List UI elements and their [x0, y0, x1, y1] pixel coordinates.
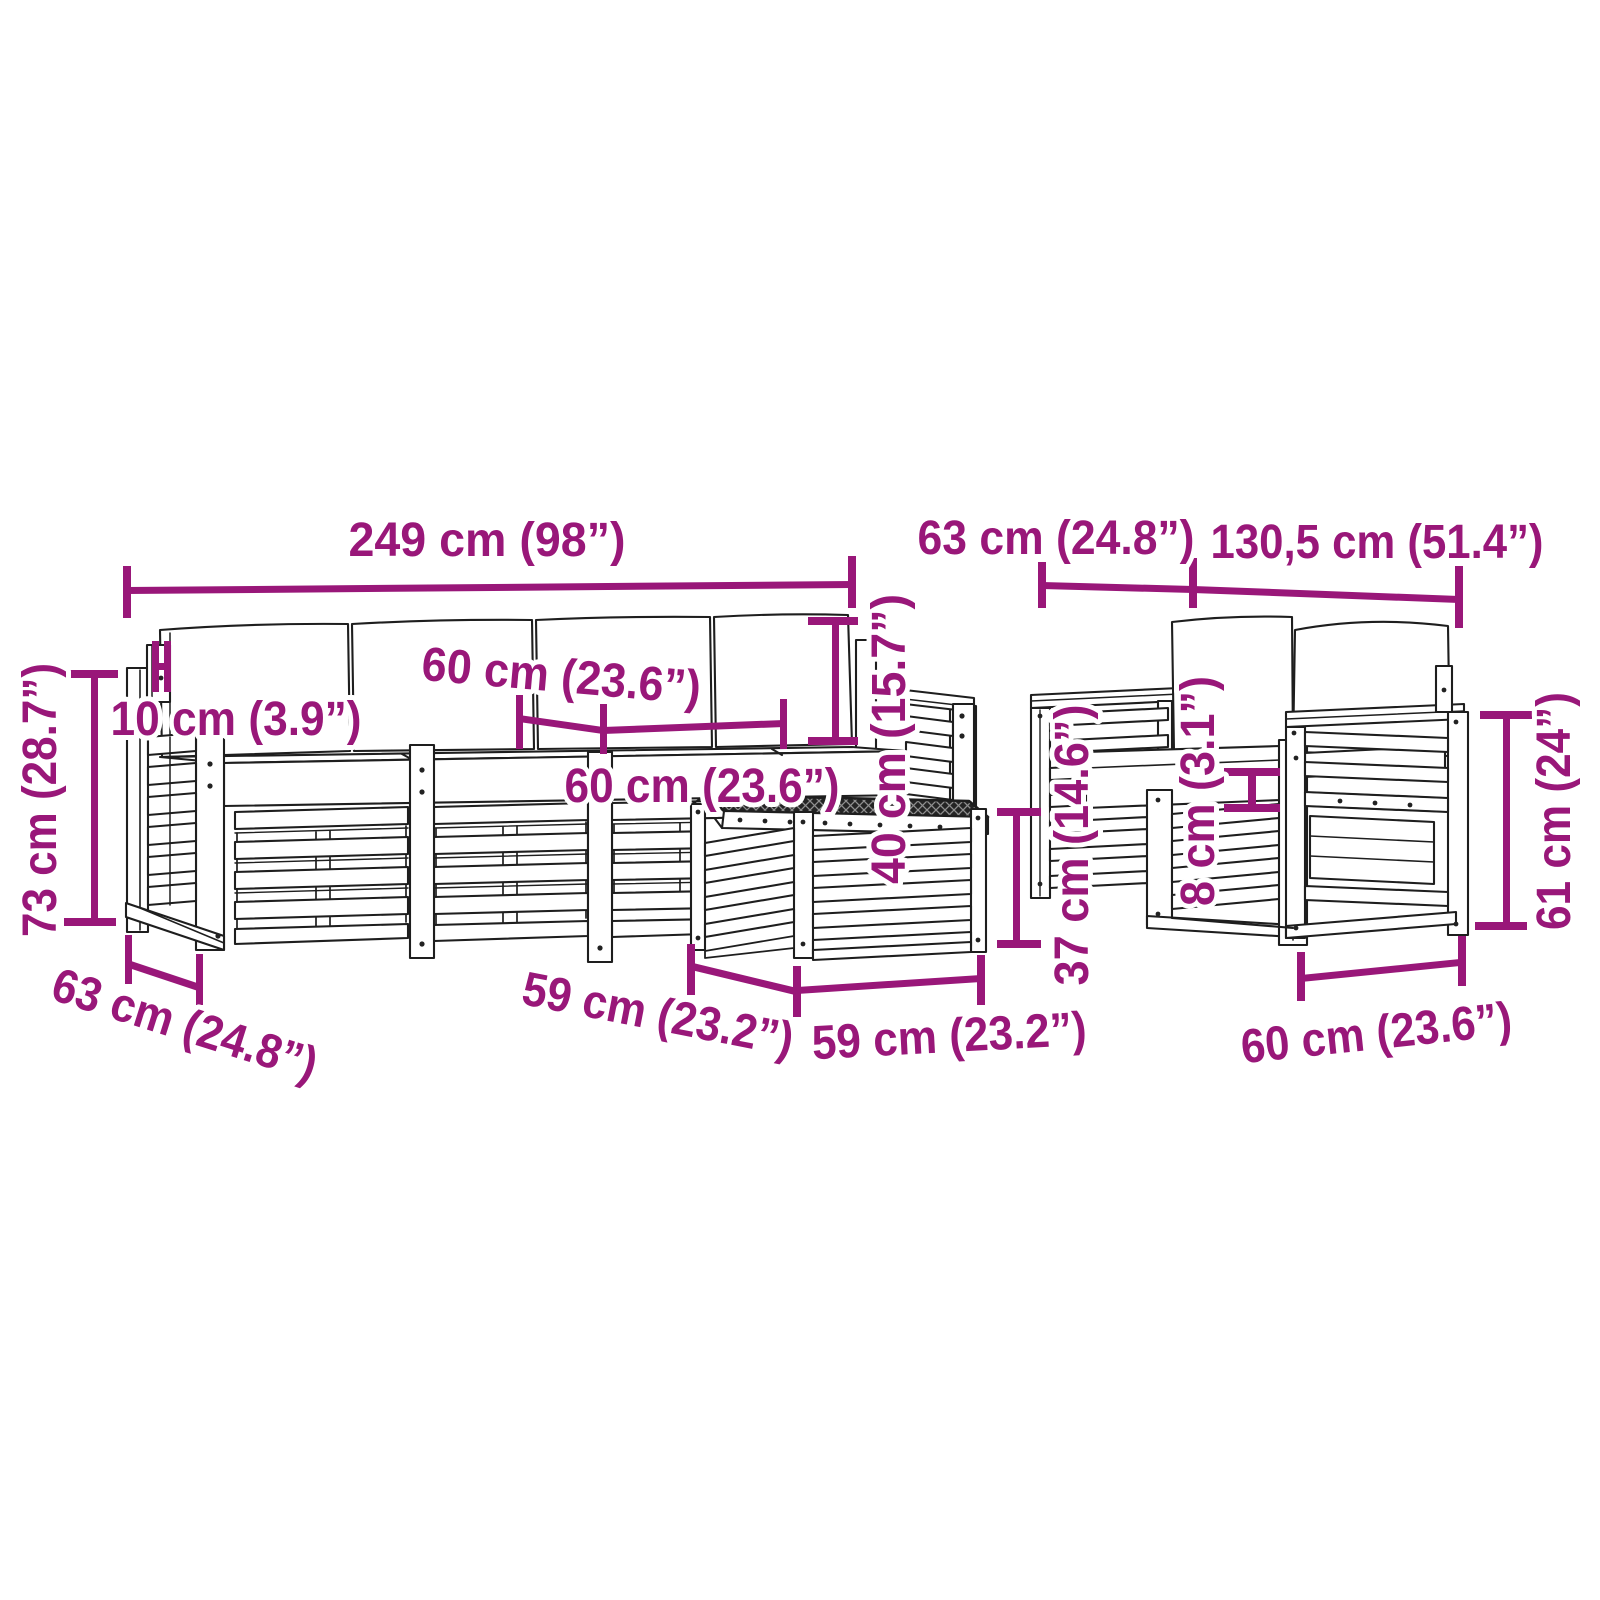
svg-text:8 cm (3.1”): 8 cm (3.1”) [1172, 676, 1225, 906]
svg-text:63 cm (24.8”): 63 cm (24.8”) [918, 512, 1195, 565]
svg-text:60 cm (23.6”): 60 cm (23.6”) [565, 760, 840, 813]
svg-text:10 cm (3.9”): 10 cm (3.9”) [111, 693, 362, 746]
svg-text:61 cm (24”): 61 cm (24”) [1528, 692, 1581, 930]
svg-text:40 cm (15.7”): 40 cm (15.7”) [863, 594, 916, 884]
svg-text:73 cm (28.7”): 73 cm (28.7”) [14, 663, 67, 937]
svg-text:130,5 cm (51.4”): 130,5 cm (51.4”) [1211, 516, 1544, 569]
svg-text:37 cm (14.6”): 37 cm (14.6”) [1046, 705, 1099, 986]
svg-text:249 cm (98”): 249 cm (98”) [349, 514, 626, 567]
